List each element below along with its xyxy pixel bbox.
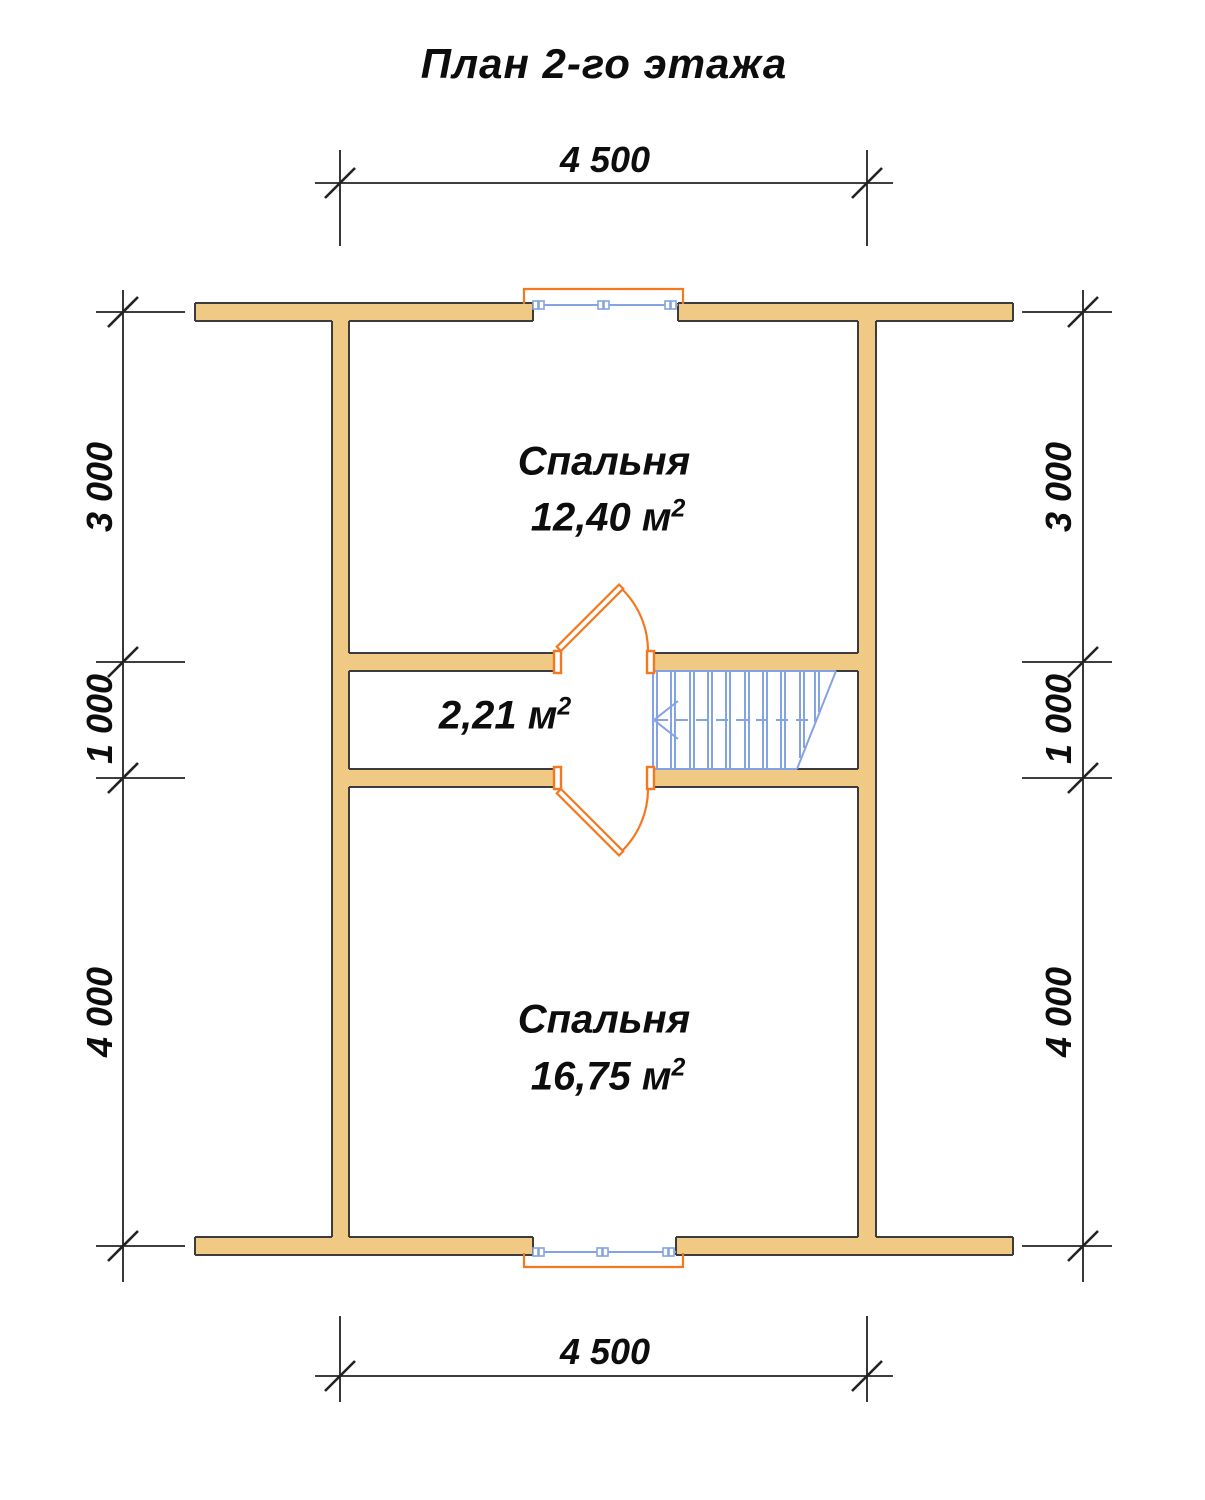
area-value: 12,40 м	[531, 496, 672, 540]
door-swing-arc	[622, 589, 648, 651]
dim-label-right-3000: 3 000	[1038, 442, 1080, 532]
door-leaf	[557, 789, 623, 855]
dim-label-left-4000: 4 000	[79, 967, 121, 1057]
floor-plan-drawing	[0, 0, 1205, 1500]
area-value: 16,75 м	[531, 1055, 672, 1099]
area-superscript: 2	[672, 1054, 686, 1081]
door-top	[557, 585, 648, 651]
room-area-bedroom-bottom: 16,75 м2	[531, 1054, 686, 1099]
door-swing-arc	[622, 789, 648, 851]
room-area-hall: 2,21 м2	[439, 693, 571, 738]
dim-label-right-4000: 4 000	[1038, 967, 1080, 1057]
window-bottom	[524, 1248, 683, 1267]
room-area-bedroom-top: 12,40 м2	[531, 495, 686, 540]
dim-label-top: 4 500	[560, 139, 650, 181]
dim-label-left-3000: 3 000	[79, 442, 121, 532]
area-superscript: 2	[557, 693, 571, 720]
floor-plan-canvas: План 2-го этажа 4 500 4 500 3 000 1 000 …	[0, 0, 1205, 1500]
stairs	[653, 671, 836, 769]
room-name-bedroom-top: Спальня	[518, 440, 690, 485]
dim-label-bottom: 4 500	[560, 1331, 650, 1373]
dimension-lines-left	[96, 290, 185, 1282]
dim-label-right-1000: 1 000	[1038, 674, 1080, 764]
door-leaf	[557, 585, 623, 651]
window-top	[524, 289, 683, 309]
room-name-bedroom-bottom: Спальня	[518, 998, 690, 1043]
door-bottom	[557, 789, 648, 855]
area-superscript: 2	[672, 495, 686, 522]
area-value: 2,21 м	[439, 694, 558, 738]
dimension-lines-right	[1022, 290, 1112, 1282]
page-title: План 2-го этажа	[421, 40, 787, 88]
dim-label-left-1000: 1 000	[79, 674, 121, 764]
